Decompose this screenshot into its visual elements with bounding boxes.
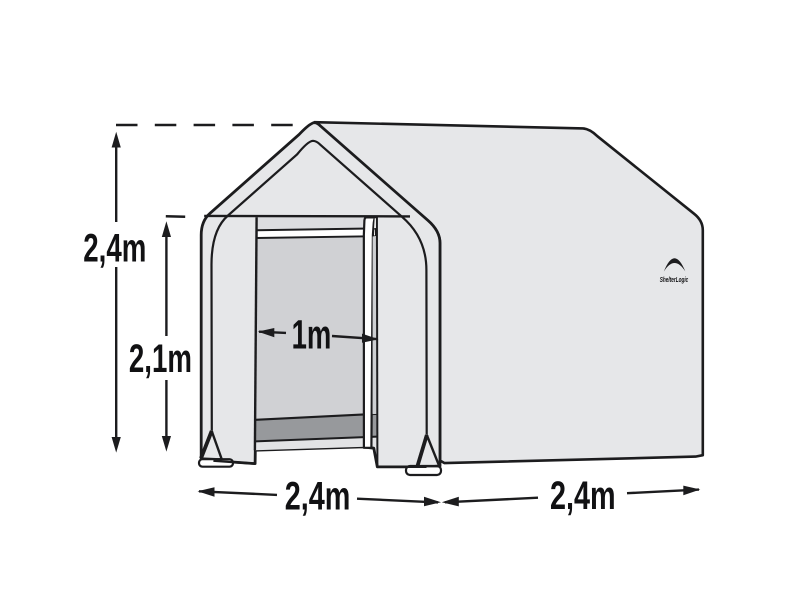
svg-text:2,4m: 2,4m [285, 474, 351, 519]
svg-text:1m: 1m [292, 312, 332, 358]
svg-text:ShelterLogic: ShelterLogic [660, 276, 689, 284]
svg-text:2,1m: 2,1m [129, 337, 192, 381]
svg-text:2,4m: 2,4m [550, 473, 616, 518]
svg-text:2,4m: 2,4m [83, 227, 146, 271]
